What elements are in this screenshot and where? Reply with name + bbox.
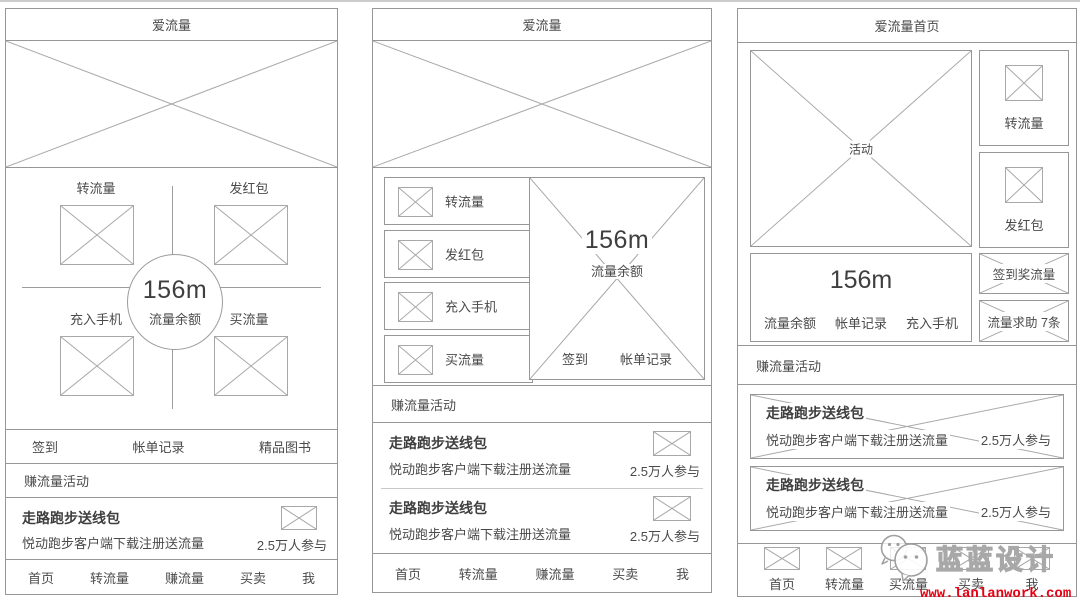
balance-panel: 156m 流量余额 帐单记录 充入手机 [750, 253, 972, 342]
menu-item-signin[interactable]: 签到 [32, 437, 58, 456]
screen1-title-bar: 爱流量 [5, 8, 338, 41]
card-subtitle: 悦动跑步客户端下载注册送流量 [764, 502, 950, 521]
balance-label: 流量余额 [588, 264, 646, 279]
screen2-title-bar: 爱流量 [372, 8, 712, 41]
nav-item-earn[interactable]: 赚流量 [165, 568, 204, 587]
transfer-traffic-icon [1005, 65, 1043, 101]
card-participants: 2.5万人参与 [630, 461, 700, 480]
send-redpacket-icon [398, 240, 433, 270]
card-thumbnail-icon [281, 506, 317, 530]
balance-value: 156m [751, 266, 971, 295]
bill-records-link[interactable]: 帐单记录 [617, 349, 675, 368]
nav-item-transfer[interactable]: 转流量 [90, 568, 129, 587]
nav-label: 首页 [769, 574, 795, 593]
menu-item-books[interactable]: 精品图书 [259, 437, 311, 456]
page-title: 爱流量首页 [874, 16, 939, 35]
top-divider [0, 0, 1080, 2]
activity-card[interactable]: 走路跑步送线包 悦动跑步客户端下载注册送流量 2.5万人参与 [750, 466, 1064, 531]
button-label: 充入手机 [445, 297, 497, 316]
screen1-menu-row: 签到 帐单记录 精品图书 [5, 429, 338, 464]
nav-item-home[interactable]: 首页 [28, 568, 54, 587]
wireframe-canvas: 爱流量 转流量 发红包 充入手机 买流量 156m 流量余额 签到 帐单记录 精… [0, 0, 1080, 606]
nav-label: 转流量 [825, 574, 864, 593]
banner-label: 签到奖流量 [990, 264, 1059, 283]
transfer-traffic-button[interactable]: 转流量 [384, 177, 533, 225]
activity-label: 活动 [846, 140, 876, 157]
nav-item-home[interactable]: 首页 [395, 564, 421, 583]
banner-label: 流量求助 7条 [985, 312, 1064, 331]
card-subtitle: 悦动跑步客户端下载注册送流量 [22, 533, 204, 552]
balance-panel: 156m 流量余额 签到 帐单记录 [529, 177, 705, 380]
watermark-brand: 蓝蓝设计 [936, 538, 1056, 577]
traffic-help-banner[interactable]: 流量求助 7条 [979, 300, 1069, 342]
watermark: 蓝蓝设计 [878, 531, 1056, 583]
buy-traffic-button[interactable]: 买流量 [384, 335, 533, 383]
send-redpacket-icon [1005, 167, 1043, 203]
card-participants: 2.5万人参与 [257, 535, 327, 554]
card-title: 走路跑步送线包 [764, 475, 866, 495]
screen3-title-bar: 爱流量首页 [737, 8, 1077, 43]
page-title: 爱流量 [522, 15, 561, 34]
screen1-activity-card[interactable]: 走路跑步送线包 悦动跑步客户端下载注册送流量 2.5万人参与 [5, 497, 338, 560]
screen1-earn-traffic-header: 赚流量活动 [5, 463, 338, 498]
screen2-earn-traffic-header: 赚流量活动 [372, 385, 712, 423]
transfer-traffic-icon[interactable] [60, 205, 134, 265]
activity-banner-placeholder[interactable]: 活动 [750, 50, 972, 247]
nav-item-trade[interactable]: 买卖 [612, 564, 638, 583]
send-redpacket-label: 发红包 [194, 178, 304, 197]
screen1-bottom-nav: 首页 转流量 赚流量 买卖 我 [5, 559, 338, 595]
section-header-label: 赚流量活动 [756, 356, 821, 375]
screen1-banner-image-placeholder[interactable] [5, 40, 338, 168]
signin-link[interactable]: 签到 [559, 349, 591, 368]
screen3-earn-traffic-header: 赚流量活动 [737, 345, 1077, 385]
card-title: 走路跑步送线包 [389, 433, 487, 453]
balance-label: 流量余额 [149, 309, 201, 328]
card-subtitle: 悦动跑步客户端下载注册送流量 [389, 459, 571, 478]
nav-item-transfer[interactable]: 转流量 [459, 564, 498, 583]
section-header-label: 赚流量活动 [24, 471, 89, 490]
charge-phone-icon[interactable] [60, 336, 134, 396]
nav-item-home[interactable]: 首页 [764, 547, 800, 593]
button-label: 转流量 [1004, 113, 1043, 132]
page-title: 爱流量 [152, 15, 191, 34]
signin-reward-banner[interactable]: 签到奖流量 [979, 253, 1069, 294]
card-thumbnail-icon [653, 431, 691, 456]
card-participants: 2.5万人参与 [979, 430, 1053, 449]
buy-traffic-icon [398, 345, 433, 375]
screen1-quadrant-section: 转流量 发红包 充入手机 买流量 156m 流量余额 [5, 167, 338, 430]
screen-home-final: 爱流量首页 活动 转流量 发红包 156m 流量余额 帐单记录 充入手机 [737, 8, 1077, 597]
wechat-bubbles-icon [878, 531, 932, 583]
nav-item-me[interactable]: 我 [676, 564, 689, 583]
menu-item-bill-records[interactable]: 帐单记录 [132, 437, 184, 456]
screen-home-v1: 爱流量 转流量 发红包 充入手机 买流量 156m 流量余额 签到 帐单记录 精… [5, 8, 338, 595]
activity-card[interactable]: 走路跑步送线包 悦动跑步客户端下载注册送流量 2.5万人参与 [373, 489, 711, 554]
nav-item-me[interactable]: 我 [302, 568, 315, 587]
nav-item-transfer[interactable]: 转流量 [825, 547, 864, 593]
transfer-traffic-label: 转流量 [41, 178, 151, 197]
card-title: 走路跑步送线包 [389, 498, 487, 518]
watermark-url[interactable]: www.lanlanwork.com [920, 586, 1071, 602]
activity-card[interactable]: 走路跑步送线包 悦动跑步客户端下载注册送流量 2.5万人参与 [750, 394, 1064, 459]
screen2-banner-image-placeholder[interactable] [372, 40, 712, 168]
transfer-traffic-icon [826, 547, 862, 570]
section-header-label: 赚流量活动 [391, 395, 456, 414]
send-redpacket-icon[interactable] [214, 205, 288, 265]
card-participants: 2.5万人参与 [630, 526, 700, 545]
charge-phone-button[interactable]: 充入手机 [384, 282, 533, 330]
screen3-activity-cards: 走路跑步送线包 悦动跑步客户端下载注册送流量 2.5万人参与 走路跑步送线包 悦… [737, 384, 1077, 544]
activity-card[interactable]: 走路跑步送线包 悦动跑步客户端下载注册送流量 2.5万人参与 [373, 423, 711, 488]
card-subtitle: 悦动跑步客户端下载注册送流量 [389, 524, 571, 543]
screen2-activity-cards: 走路跑步送线包 悦动跑步客户端下载注册送流量 2.5万人参与 走路跑步送线包 悦… [372, 422, 712, 554]
traffic-balance-circle: 156m 流量余额 [127, 254, 223, 350]
nav-item-trade[interactable]: 买卖 [240, 568, 266, 587]
button-label: 转流量 [445, 192, 484, 211]
transfer-traffic-icon [398, 187, 433, 217]
send-redpacket-button[interactable]: 发红包 [979, 152, 1069, 248]
buy-traffic-icon[interactable] [214, 336, 288, 396]
transfer-traffic-button[interactable]: 转流量 [979, 50, 1069, 146]
send-redpacket-button[interactable]: 发红包 [384, 230, 533, 278]
card-subtitle: 悦动跑步客户端下载注册送流量 [764, 430, 950, 449]
charge-phone-link[interactable]: 充入手机 [906, 313, 958, 332]
card-participants: 2.5万人参与 [979, 502, 1053, 521]
balance-label-link[interactable]: 流量余额 [764, 313, 816, 332]
button-label: 发红包 [1004, 215, 1043, 234]
charge-phone-icon [398, 292, 433, 322]
screen3-main-section: 活动 转流量 发红包 156m 流量余额 帐单记录 充入手机 签到奖流量 [737, 42, 1077, 346]
bill-records-link[interactable]: 帐单记录 [835, 313, 887, 332]
balance-value: 156m [143, 276, 208, 305]
card-title: 走路跑步送线包 [22, 508, 120, 528]
card-title: 走路跑步送线包 [764, 403, 866, 423]
balance-value: 156m [582, 226, 653, 254]
button-label: 发红包 [445, 245, 484, 264]
screen2-main-section: 转流量 发红包 充入手机 买流量 156m 流量余额 签到 [372, 167, 712, 386]
home-icon [764, 547, 800, 570]
screen-home-v2: 爱流量 转流量 发红包 充入手机 买流量 156m [372, 8, 712, 593]
button-label: 买流量 [445, 350, 484, 369]
screen2-bottom-nav: 首页 转流量 赚流量 买卖 我 [372, 553, 712, 593]
card-thumbnail-icon [653, 496, 691, 521]
nav-item-earn[interactable]: 赚流量 [535, 564, 574, 583]
